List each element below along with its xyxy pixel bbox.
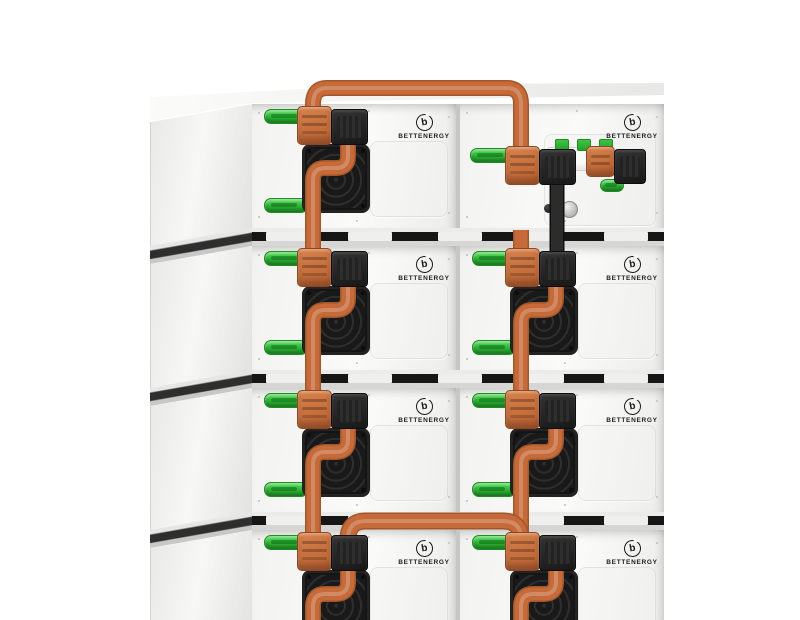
- screw-icon: [307, 488, 311, 492]
- screw-icon: [361, 488, 365, 492]
- screw-icon: [307, 204, 311, 208]
- brand-label: BETTENERGY: [596, 559, 668, 566]
- power-connector-orange: [505, 390, 540, 429]
- power-connector-black: [539, 535, 576, 571]
- cooling-fan-icon: [302, 144, 370, 213]
- tier2-left-module: b BETTENERGY: [252, 246, 456, 370]
- brand-mark-icon: b: [414, 539, 434, 559]
- screw-icon: [307, 149, 311, 153]
- tier-4: b BETTENERGY b BETTENERGY: [252, 530, 664, 620]
- recessed-panel: [578, 425, 656, 501]
- brand-mark-icon: b: [622, 539, 642, 559]
- brand-mark-icon: b: [622, 113, 642, 133]
- screw-icon: [361, 149, 365, 153]
- screw-icon: [307, 346, 311, 350]
- screw-dots: [258, 396, 260, 398]
- power-connector-orange: [297, 390, 332, 429]
- screw-icon: [569, 291, 573, 295]
- power-connector-black: [331, 109, 368, 145]
- screw-icon: [569, 346, 573, 350]
- screw-dots: [466, 112, 468, 114]
- screw-icon: [361, 575, 365, 579]
- tier3-left-module: b BETTENERGY: [252, 388, 456, 512]
- power-connector-black: [331, 251, 368, 287]
- cooling-fan-icon: [302, 286, 370, 355]
- brand-mark-icon: b: [414, 255, 434, 275]
- brand-label: BETTENERGY: [388, 133, 460, 140]
- power-connector-black: [539, 393, 576, 429]
- screw-icon: [515, 291, 519, 295]
- screw-icon: [361, 204, 365, 208]
- power-connector-black: [331, 393, 368, 429]
- power-connector-black: [539, 251, 576, 287]
- screw-dots: [258, 538, 260, 540]
- brand-label: BETTENERGY: [596, 417, 668, 424]
- side-panel: [150, 388, 253, 530]
- power-connector-black: [331, 535, 368, 571]
- tier-3: b BETTENERGY b BETTENERGY: [252, 388, 664, 512]
- tier-2: b BETTENERGY b BETTENERGY: [252, 246, 664, 370]
- cooling-fan-icon: [510, 286, 578, 355]
- brand-mark-icon: b: [414, 113, 434, 133]
- brand-logo: b BETTENERGY: [388, 396, 460, 424]
- recessed-panel: [370, 141, 448, 217]
- power-connector-orange: [505, 146, 540, 185]
- power-connector-orange: [297, 106, 332, 145]
- screw-dots: [466, 396, 468, 398]
- round-button-black: [544, 204, 553, 213]
- aux-connector-black: [614, 149, 646, 184]
- brand-mark-icon: b: [622, 255, 642, 275]
- power-connector-orange: [297, 248, 332, 287]
- brand-logo: b BETTENERGY: [388, 538, 460, 566]
- tier2-right-module: b BETTENERGY: [460, 246, 664, 370]
- battery-stack-scene: b BETTENERGY b BETTENERGY: [0, 0, 800, 620]
- tier3-right-module: b BETTENERGY: [460, 388, 664, 512]
- recessed-panel: [370, 567, 448, 620]
- power-connector-black: [539, 149, 576, 185]
- tier1-left-module: b BETTENERGY: [252, 104, 456, 228]
- brand-label: BETTENERGY: [388, 559, 460, 566]
- brand-logo: b BETTENERGY: [596, 538, 668, 566]
- power-connector-orange: [505, 532, 540, 571]
- screw-icon: [307, 575, 311, 579]
- brand-logo: b BETTENERGY: [596, 396, 668, 424]
- recessed-panel: [578, 567, 656, 620]
- screw-icon: [307, 291, 311, 295]
- brand-label: BETTENERGY: [596, 275, 668, 282]
- brand-mark-icon: b: [622, 397, 642, 417]
- screw-dots: [258, 112, 260, 114]
- round-button-silver: [561, 201, 578, 218]
- screw-dots: [466, 254, 468, 256]
- stack-base: [252, 370, 664, 388]
- brand-label: BETTENERGY: [388, 275, 460, 282]
- screw-icon: [515, 433, 519, 437]
- screw-icon: [515, 488, 519, 492]
- tier1-right-module: b BETTENERGY: [460, 104, 664, 228]
- cooling-fan-icon: [302, 428, 370, 497]
- screw-dots: [466, 538, 468, 540]
- tier4-left-module: b BETTENERGY: [252, 530, 456, 620]
- cooling-fan-icon: [302, 570, 370, 620]
- tier4-right-module: b BETTENERGY: [460, 530, 664, 620]
- screw-icon: [515, 575, 519, 579]
- screw-icon: [307, 433, 311, 437]
- screw-icon: [569, 433, 573, 437]
- tier-1: b BETTENERGY b BETTENERGY: [252, 104, 664, 228]
- brand-logo: b BETTENERGY: [596, 254, 668, 282]
- brand-logo: b BETTENERGY: [596, 112, 668, 140]
- screw-icon: [569, 575, 573, 579]
- recessed-panel: [370, 283, 448, 359]
- screw-icon: [569, 488, 573, 492]
- recessed-panel: [578, 283, 656, 359]
- aux-connector-orange: [586, 146, 615, 177]
- cooling-fan-icon: [510, 570, 578, 620]
- brand-mark-icon: b: [414, 397, 434, 417]
- brand-logo: b BETTENERGY: [388, 112, 460, 140]
- brand-label: BETTENERGY: [388, 417, 460, 424]
- stack-base: [252, 228, 664, 246]
- stack-base: [252, 512, 664, 530]
- screw-icon: [361, 291, 365, 295]
- screw-icon: [361, 433, 365, 437]
- brand-logo: b BETTENERGY: [388, 254, 460, 282]
- screw-dots: [258, 254, 260, 256]
- power-connector-orange: [297, 532, 332, 571]
- side-panel: [150, 246, 253, 388]
- cooling-fan-icon: [510, 428, 578, 497]
- screw-icon: [361, 346, 365, 350]
- power-connector-orange: [505, 248, 540, 287]
- screw-icon: [515, 346, 519, 350]
- recessed-panel: [370, 425, 448, 501]
- side-panel: [150, 104, 253, 246]
